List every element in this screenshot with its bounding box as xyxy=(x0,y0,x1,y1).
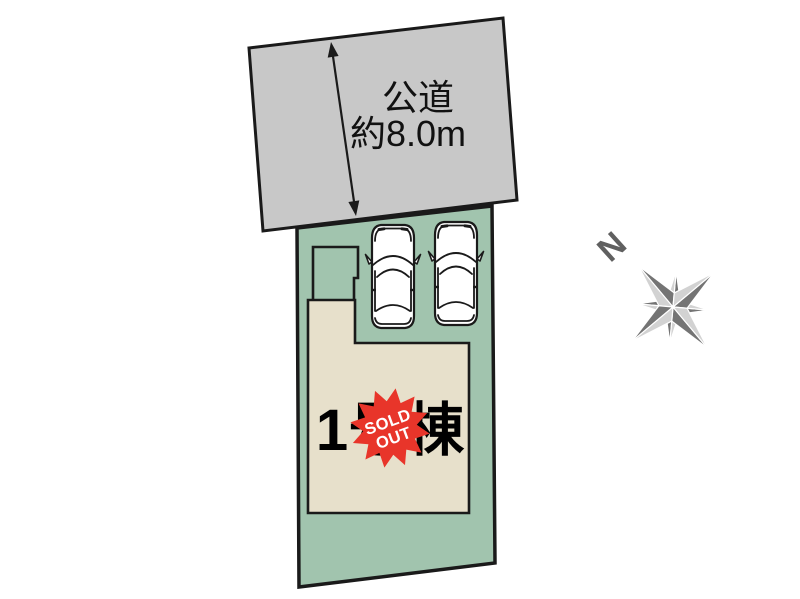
road-width-label: 約8.0m xyxy=(350,113,466,154)
road-area: 公道 約8.0m xyxy=(249,18,517,231)
road-name-label: 公道 xyxy=(382,77,454,118)
car-top-view-icon xyxy=(429,222,484,325)
diagram-svg: 公道 約8.0m 1号棟 SOLD OUT xyxy=(0,0,800,599)
compass-rose-8-point-icon: N xyxy=(590,225,749,383)
plot-layout-diagram: 公道 約8.0m 1号棟 SOLD OUT xyxy=(0,0,800,599)
car-top-view-icon xyxy=(366,225,421,328)
north-label: N xyxy=(590,225,634,270)
